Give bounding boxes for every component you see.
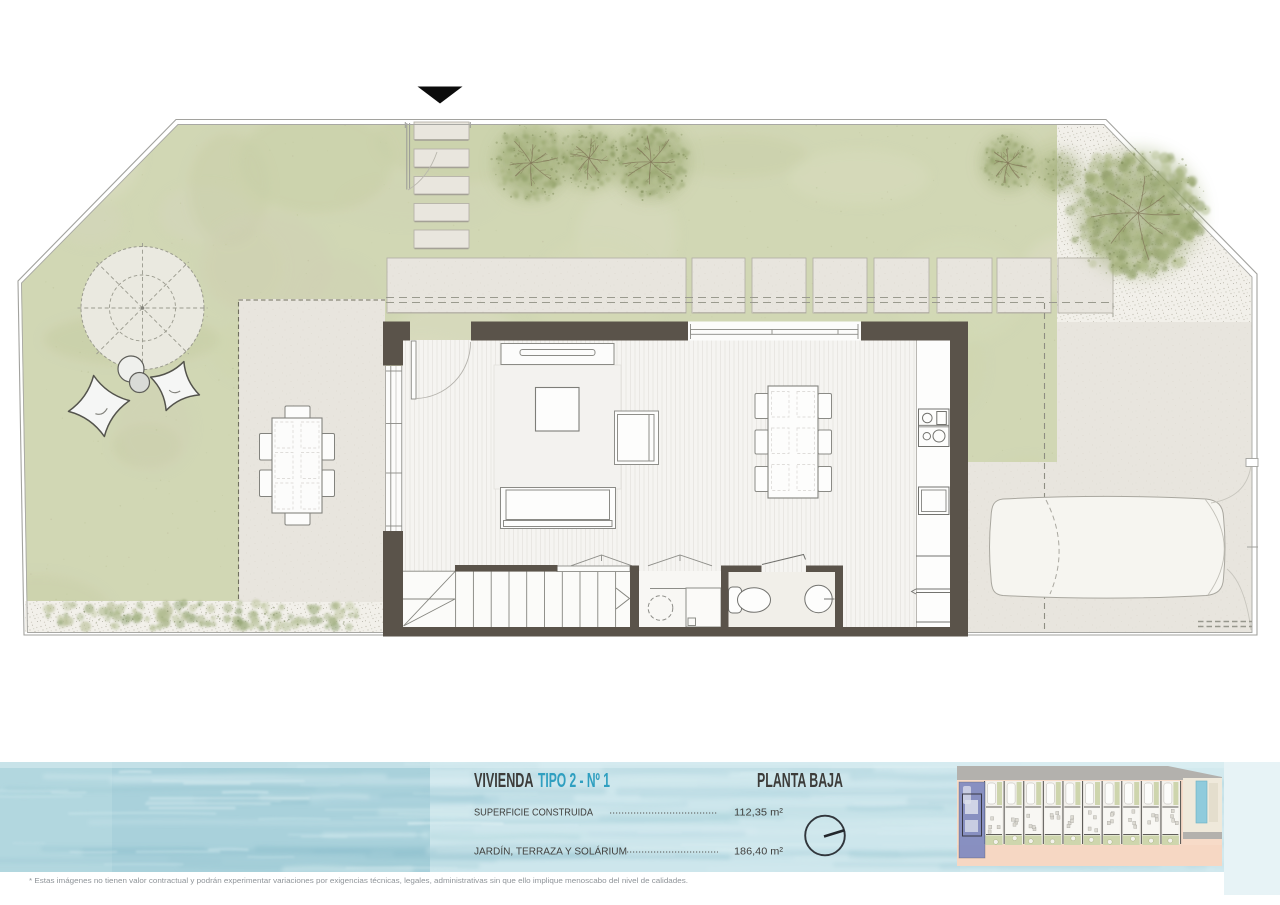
svg-text:112,35 m²: 112,35 m²: [734, 808, 784, 819]
svg-text:TIPO 2 - Nº 1: TIPO 2 - Nº 1: [538, 770, 610, 792]
svg-text:JARDÍN, TERRAZA Y SOLÁRIUM: JARDÍN, TERRAZA Y SOLÁRIUM: [474, 845, 627, 858]
svg-text:VIVIENDA: VIVIENDA: [474, 770, 534, 792]
svg-text:PLANTA BAJA: PLANTA BAJA: [757, 770, 843, 792]
svg-text:* Estas imágenes no tienen val: * Estas imágenes no tienen valor contrac…: [29, 876, 688, 885]
svg-text:SUPERFICIE CONSTRUIDA: SUPERFICIE CONSTRUIDA: [474, 808, 593, 819]
svg-text:186,40 m²: 186,40 m²: [734, 847, 784, 858]
